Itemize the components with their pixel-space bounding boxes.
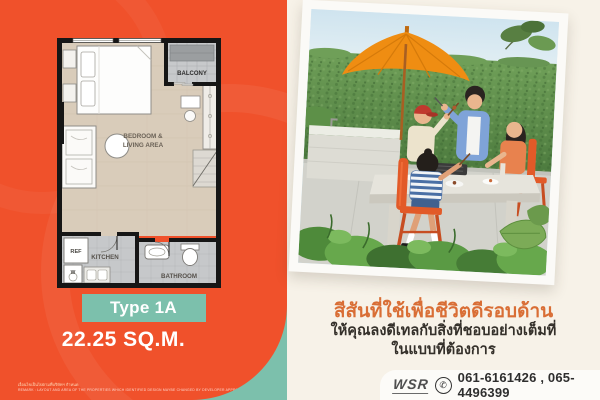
contact-bar: WSR ✆ 061-6161426 , 065-4496399	[380, 370, 600, 400]
sofa	[62, 126, 96, 188]
bathroom-label: BATHROOM	[161, 273, 197, 280]
nightstand	[63, 50, 76, 68]
phone-icon: ✆	[435, 377, 452, 394]
lifestyle-photo	[298, 9, 559, 276]
washer-label: W	[71, 270, 76, 276]
bedroom-label-line2: LIVING AREA	[123, 142, 164, 149]
subline-thai-2: ในแบบที่ต้องการ	[287, 341, 600, 360]
right-panel: สีสันที่ใช้เพื่อชีวิตดีรอบด้าน ให้คุณลงด…	[287, 0, 600, 400]
ref-label: REF	[70, 249, 82, 255]
wsr-logo: WSR	[392, 377, 429, 394]
area-text: 22.25 SQ.M.	[0, 328, 247, 352]
nightstand	[63, 84, 76, 102]
balcony-label: BALCONY	[177, 71, 207, 77]
floorplan-drawing: BALCONY	[57, 38, 221, 288]
lifestyle-photo-frame	[289, 0, 569, 285]
pillow	[81, 52, 95, 77]
subline-thai-1: ให้คุณลงดีเทลกับสิ่งที่ชอบอย่างเต็มที่	[287, 322, 600, 341]
wardrobe	[203, 85, 217, 149]
type-badge: Type 1A	[82, 294, 206, 322]
bbq-scene	[298, 9, 559, 276]
phone-numbers[interactable]: 061-6161426 , 065-4496399	[458, 370, 600, 400]
toilet	[181, 244, 199, 266]
balcony-area: BALCONY	[167, 42, 217, 84]
entry-foyer	[193, 150, 217, 187]
kitchen-label: KITCHEN	[91, 254, 119, 261]
left-panel: BALCONY	[0, 0, 287, 400]
orange-background: BALCONY	[0, 0, 287, 400]
pillow	[81, 81, 95, 106]
disclaimer-english: REMARK : LAYOUT AND AREA OF THE PROPERTI…	[18, 388, 278, 393]
flyer: BALCONY	[0, 0, 600, 400]
bedroom-label-line1: BEDROOM &	[123, 133, 163, 140]
floorplan: BALCONY	[57, 38, 221, 288]
disclaimer: เงื่อนไขเป็นไปตามที่บริษัทฯ กำหนด REMARK…	[18, 382, 278, 393]
